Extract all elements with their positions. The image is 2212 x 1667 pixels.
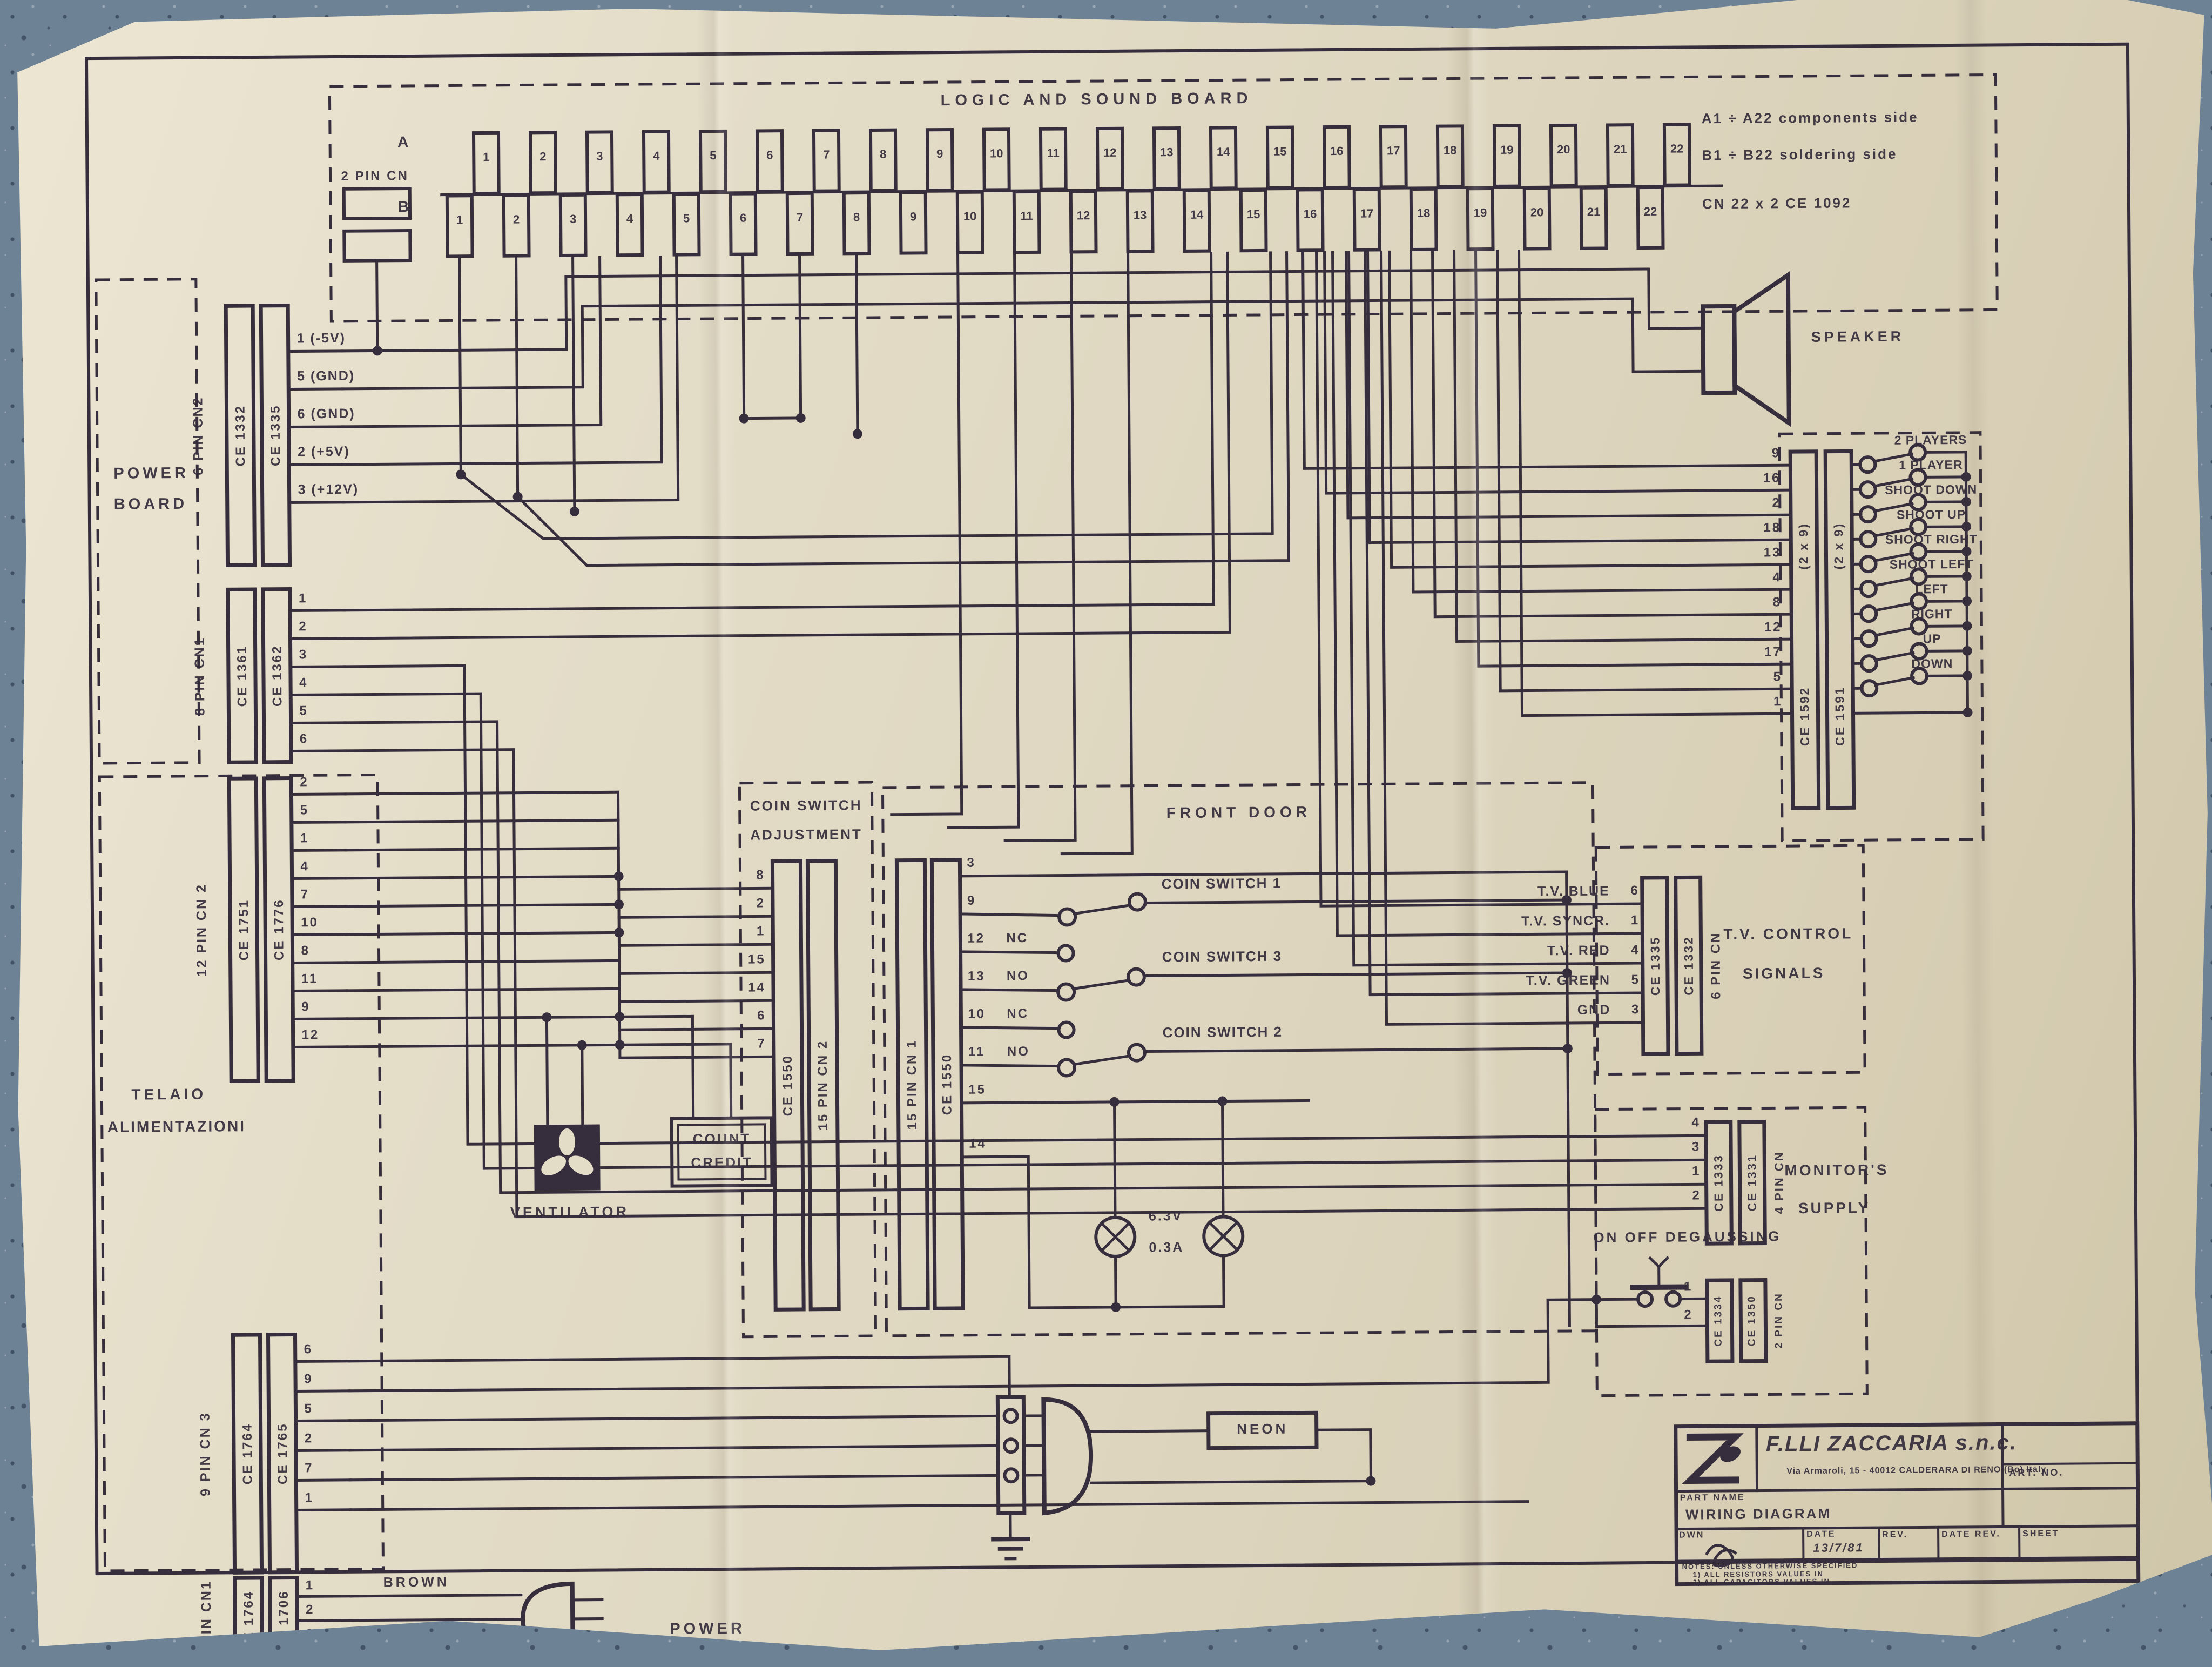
pin-label: 4 [300,859,309,874]
rev-label: REV. [1882,1530,1908,1540]
control-switch-label: 1 PLAYER [1866,457,1995,473]
connector-label: 15 PIN CN 2 [814,893,832,1277]
pin-label: 12 [967,931,985,946]
header-pin-a: 10 [984,146,1009,160]
pin-label: NO [1007,1044,1030,1059]
connector-label: CE 1332 [1681,888,1697,1043]
pin-label: 6 [1618,883,1640,898]
pin-label: 5 [300,803,309,818]
pin-label: 1 [1618,913,1640,928]
connector-label: CE 1361 [234,600,251,751]
legend-line-a: A1 ÷ A22 components side [1702,109,1919,127]
pin-label: 2 [299,619,308,634]
pin-label: 9 [967,893,976,909]
pin-label: 4 [1618,943,1640,958]
pin-label: 2 (+5V) [298,444,350,460]
pin-label: 1 [299,591,308,606]
header-pin-a: 1 [474,150,498,164]
header-pin-b: 18 [1411,206,1436,220]
connector-label: CE 1765 [275,1346,292,1562]
control-switch-label: SHOOT DOWN [1866,482,1996,498]
dwn-label: DWN [1679,1530,1704,1540]
connector-label: CE 1331 [1745,1127,1759,1238]
connector-label: CE 1764 [240,1346,257,1562]
connector-label: CE 1764 [241,1589,257,1653]
tv-title-1: T.V. CONTROL [1723,925,1853,943]
pin-label: 16 [1754,470,1781,486]
control-switch-label: SHOOT UP [1866,507,1996,522]
pin-label: 9 [304,1372,313,1387]
monitor-title-2: SUPPLY [1798,1199,1871,1217]
two-pin-cn-label: 2 PIN CN [341,169,409,184]
pin-label: 1 [1684,1279,1693,1294]
header-pin-a: 20 [1551,143,1576,157]
header-pins [441,124,1722,257]
pin-label: 1 (-5V) [297,331,346,347]
header-pin-b: 17 [1354,206,1379,220]
header-pin-a: 9 [927,147,952,161]
connector-label: 2 PIN CN [1773,1282,1785,1359]
push-button-icon [1633,1258,1685,1307]
legend-line-b: B1 ÷ B22 soldering side [1702,146,1897,164]
neon-label: NEON [1209,1420,1317,1437]
pin-label: 4 [299,675,308,690]
pin-label: 2 [1684,1307,1693,1322]
header-pin-a: 5 [700,149,725,163]
header-pin-b: 6 [731,211,756,225]
count-credit-label-2: CREDIT [678,1154,765,1171]
header-pin-b: 9 [901,210,926,224]
pin-label: NO [1007,969,1029,984]
connector-label: CE 1751 [235,789,253,1070]
header-pin-b: 22 [1638,205,1663,219]
connector-label: CE 1335 [267,317,284,554]
pin-label: 6 [304,1342,313,1357]
tv-title-2: SIGNALS [1743,965,1825,983]
pin-label: 2 [306,1602,315,1617]
control-switch-label: SHOOT LEFT [1867,556,1997,572]
connector-label: CE 1350 [1746,1282,1758,1359]
header-pin-a: 21 [1608,142,1633,156]
header-pin-b: 16 [1298,207,1323,221]
control-switch-label: SHOOT RIGHT [1866,532,1996,547]
connector-label: 4 PIN CN [1772,1127,1786,1238]
pin-label: 6 [725,1008,766,1024]
pin-label: 8 [724,868,765,883]
date-rev-label: DATE REV. [1941,1529,2001,1540]
header-pin-b: 12 [1071,209,1096,223]
header-pin-a: 2 [530,150,555,164]
pin-label: 14 [969,1137,987,1152]
connector-label: CE 1592 [1797,638,1813,795]
pin-label: 2 [724,896,765,911]
pin-label: 3 [967,856,976,871]
power-board-label-1: POWER [113,465,189,483]
pin-label: NC [1006,931,1028,946]
pin-label: 1 [1679,1164,1701,1179]
company-name: F.LLI ZACCARIA s.n.c. [1766,1430,2017,1456]
tv-signal-label: T.V. RED [1480,943,1610,959]
connector-label: 15 PIN CN 1 [903,892,921,1276]
header-pin-b: 13 [1128,208,1152,222]
connector-label: CE 1591 [1832,637,1848,794]
telaio-label-1: TELAIO [131,1086,206,1104]
header-pin-a: 18 [1438,143,1462,157]
power-plug-icon [523,1584,603,1655]
header-pin-b: 15 [1241,207,1266,221]
date-value: 13/7/81 [1813,1541,1864,1555]
count-credit-box [672,1118,772,1186]
pin-label: 6 (GND) [297,406,355,422]
pin-label: 5 [1618,972,1640,987]
pin-label: 6 [300,731,309,747]
header-pin-a: 8 [871,147,895,162]
front-door-label: FRONT DOOR [1166,803,1311,822]
tv-signal-label: T.V. SYNCR. [1480,913,1610,930]
telaio-label-2: ALIMENTAZIONI [107,1118,246,1136]
header-pin-b: 14 [1184,208,1209,222]
pin-label: 15 [725,952,766,967]
pin-label: 3 [306,1626,315,1642]
light-blue-wire-label: LIGHT BLUE [372,1623,480,1639]
wiring-svg [0,0,2212,1667]
pin-label: 3 (+12V) [298,482,359,498]
connector-label: 6 PIN CN [1708,888,1724,1043]
header-pin-b: 4 [617,212,642,226]
power-board-label-2: BOARD [114,495,188,514]
notes-line-2: 2) ALL CAPACITORS VALUES IN [1693,1577,1830,1587]
plug-icon [1023,1399,1091,1513]
connector-label: CE 1334 [1712,1282,1725,1359]
row-b-label: B [398,198,410,216]
pin-label: 8 [301,943,310,958]
header-pin-b: 8 [844,210,869,224]
header-pin-a: 14 [1211,145,1236,159]
pin-label: 13 [968,969,986,984]
pin-label: 8 [1755,595,1782,610]
pin-label: 4 [1755,570,1782,585]
pin-label: 12 [1755,620,1782,635]
lamp-current: 0.3A [1149,1240,1184,1255]
pin-label: 5 (GND) [297,368,355,385]
monitor-title-1: MONITOR'S [1784,1161,1889,1179]
pin-label: 11 [968,1045,986,1060]
header-pin-a: 12 [1097,146,1122,160]
coin-switch-label: COIN SWITCH 3 [1162,948,1283,966]
header-pin-b: 1 [447,213,472,227]
header-pin-a: 22 [1664,142,1689,156]
header-pin-b: 7 [787,211,812,225]
art-no-label: ART. NO. [2009,1467,2063,1479]
control-switch-label: 2 PLAYERS [1866,432,1995,448]
sheet-label: SHEET [2022,1529,2059,1539]
header-pin-a: 6 [757,148,782,162]
tv-signal-label: T.V. GREEN [1481,972,1610,989]
pin-label: 2 [1680,1188,1701,1203]
pin-label: 7 [305,1461,314,1476]
speaker-icon [1703,275,1789,424]
pin-label: 17 [1755,644,1782,660]
pin-label: 12 [302,1027,320,1043]
tv-signal-label: T.V. BLUE [1480,883,1610,900]
pin-label: 4 [1679,1115,1701,1130]
pin-label: 1 [1755,694,1782,709]
header-pin-b: 2 [504,212,529,226]
pin-label: 10 [968,1007,986,1022]
pin-label: 18 [1754,520,1781,535]
header-pin-a: 3 [587,149,612,163]
pin-label: 1 [300,831,309,846]
header-pin-a: 16 [1324,144,1349,158]
header-pin-a: 13 [1154,145,1179,159]
coin-connectors [772,860,963,1309]
coin-adj-label-1: COIN SWITCH [744,797,868,815]
photographed-wiring-diagram: { "board": { "title": "LOGIC AND SOUND B… [0,0,2212,1659]
header-pin-b: 5 [674,211,699,225]
date-label: DATE [1806,1530,1836,1540]
connector-label: CE 1706 [276,1589,292,1653]
header-pin-b: 20 [1525,205,1549,219]
legend-line-cn: CN 22 x 2 CE 1092 [1702,194,1852,212]
header-pin-b: 19 [1468,206,1493,220]
company-address: Via Armaroli, 15 - 40012 CALDERARA DI RE… [1786,1465,2046,1476]
count-credit-label-1: COUNT [678,1130,765,1147]
row-a-label: A [397,133,410,151]
connector-name: 6 PIN CN2 [190,312,207,560]
pin-label: 15 [968,1083,986,1098]
connector-label: (2 x 9) [1796,470,1811,622]
connector-label: CE 1362 [269,600,286,751]
connector-label: CE 1335 [1648,889,1663,1043]
control-switch-label: UP [1867,631,1997,647]
connector-label: (2 x 9) [1831,470,1846,621]
socket-icon [997,1397,1024,1513]
brown-wire-label: BROWN [383,1575,449,1591]
pin-label: 5 [299,703,308,718]
pin-label: 2 [300,775,309,790]
control-switch-label: LEFT [1867,581,1997,597]
header-pin-b: 10 [957,210,982,224]
pin-label: 13 [1754,545,1781,560]
coin-switch-label: COIN SWITCH 2 [1163,1024,1283,1041]
lamp-icons [1095,1096,1243,1312]
pin-label: 3 [299,647,308,662]
lamp-voltage: 6.3V [1149,1208,1183,1224]
header-pin-b: 11 [1014,209,1039,223]
pin-label: 1 [305,1490,314,1505]
pin-label: 14 [725,980,766,996]
speaker-label: SPEAKER [1811,328,1905,346]
connector-name: 8 PIN CN1 [192,595,208,757]
header-pin-a: 17 [1381,144,1406,158]
pin-label: 2 [305,1431,314,1446]
connector-name: 12 PIN CN 2 [193,784,211,1076]
pin-label: 5 [1755,669,1782,684]
ground-icon [993,1513,1028,1558]
pin-label: 1 [306,1578,315,1593]
pin-label: 11 [301,971,319,986]
control-switch-label: DOWN [1867,656,1997,671]
pin-label: 9 [301,999,311,1014]
header-pin-a: 7 [814,147,839,162]
connector-label: CE 1332 [232,317,249,554]
connector-name: 3 PIN CN1 [199,1584,215,1659]
control-switch-label: RIGHT [1867,606,1997,622]
header-pin-b: 21 [1581,205,1606,219]
power-plug-label: POWER [670,1620,745,1638]
part-name-label: PART NAME [1680,1493,1745,1503]
fan-icon [534,1125,601,1191]
pin-label: 1 [724,924,765,939]
header-pin-a: 19 [1494,143,1519,157]
header-pin-b: 3 [561,212,585,226]
coin-switch-label: COIN SWITCH 1 [1162,875,1282,893]
header-pin-a: 15 [1267,145,1292,159]
notes-line-0: NOTES: UNLESS OTHERWISE SPECIFIED [1682,1561,1858,1570]
board-title: LOGIC AND SOUND BOARD [907,90,1285,110]
pin-label: 7 [725,1036,766,1052]
header-pin-a: 11 [1041,146,1065,160]
header-pin-a: 4 [644,149,669,163]
schematic-paper: LOGIC AND SOUND BOARD A1 ÷ A22 component… [0,0,2212,1667]
pin-label: 2 [1754,495,1781,510]
part-name-value: WIRING DIAGRAM [1685,1505,1831,1523]
pin-label: 3 [1618,1002,1640,1017]
pin-label: 3 [1679,1139,1701,1154]
connector-label: CE 1333 [1711,1127,1726,1238]
ventilator-label: VENTILATOR [489,1204,651,1221]
connector-name: 9 PIN CN 3 [197,1341,214,1568]
pin-label: 5 [304,1401,313,1416]
pin-label: 10 [301,915,319,930]
connector-label: CE 1776 [271,789,288,1070]
pin-label: 7 [301,887,310,902]
pin-label: 9 [1754,446,1781,461]
pin-label: NC [1007,1006,1029,1021]
coin-adj-label-2: ADJUSTMENT [744,826,868,844]
connector-label: CE 1550 [939,892,956,1276]
connector-label: CE 1550 [779,893,797,1277]
tv-signal-label: GND [1481,1002,1610,1019]
